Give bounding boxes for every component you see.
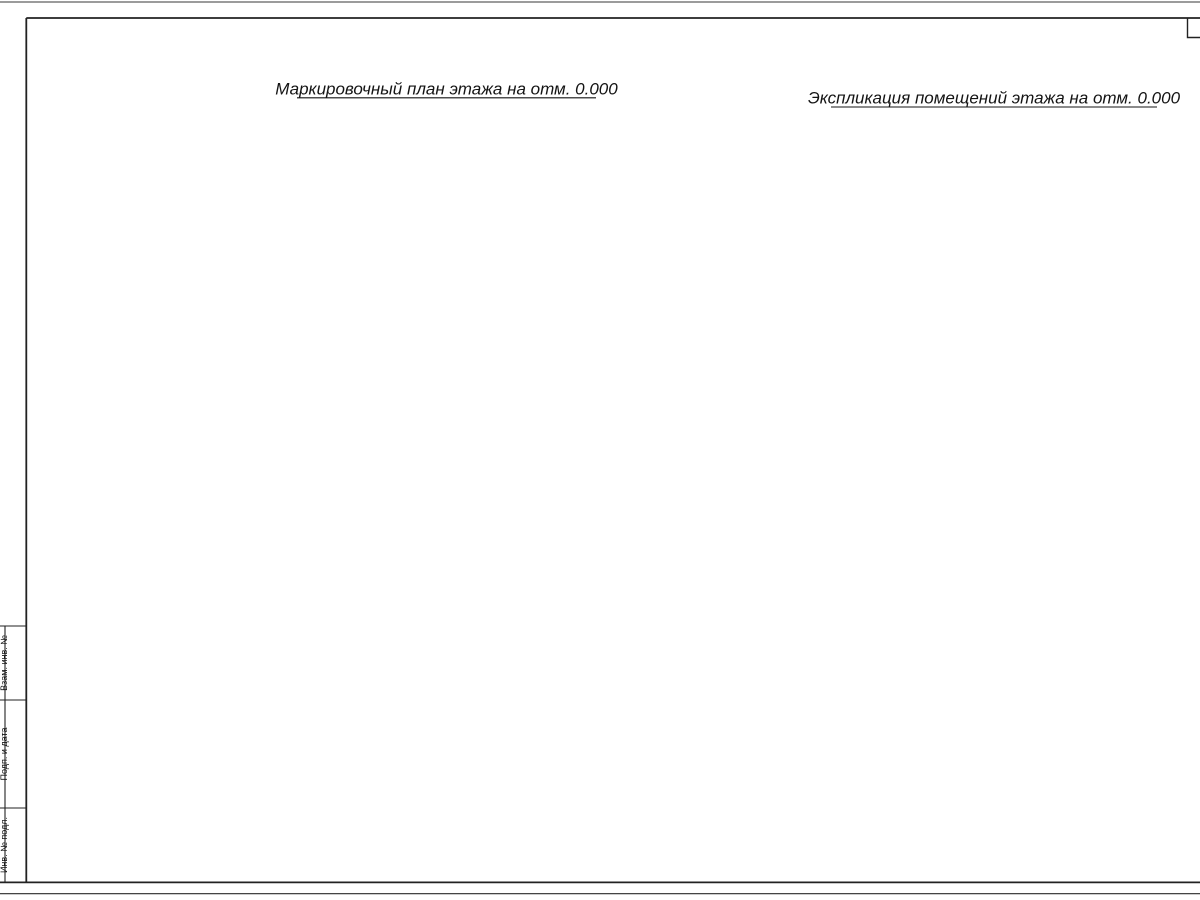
svg-text:Экспликация помещений этажа на: Экспликация помещений этажа на отм. 0.00… — [808, 89, 1181, 108]
svg-text:Маркировочный план этажа на от: Маркировочный план этажа на отм. 0.000 — [275, 80, 618, 99]
svg-text:Подп. и дата: Подп. и дата — [0, 727, 9, 780]
svg-text:Взам. инв. №: Взам. инв. № — [0, 635, 9, 691]
svg-text:Инв. № подл.: Инв. № подл. — [0, 817, 9, 873]
